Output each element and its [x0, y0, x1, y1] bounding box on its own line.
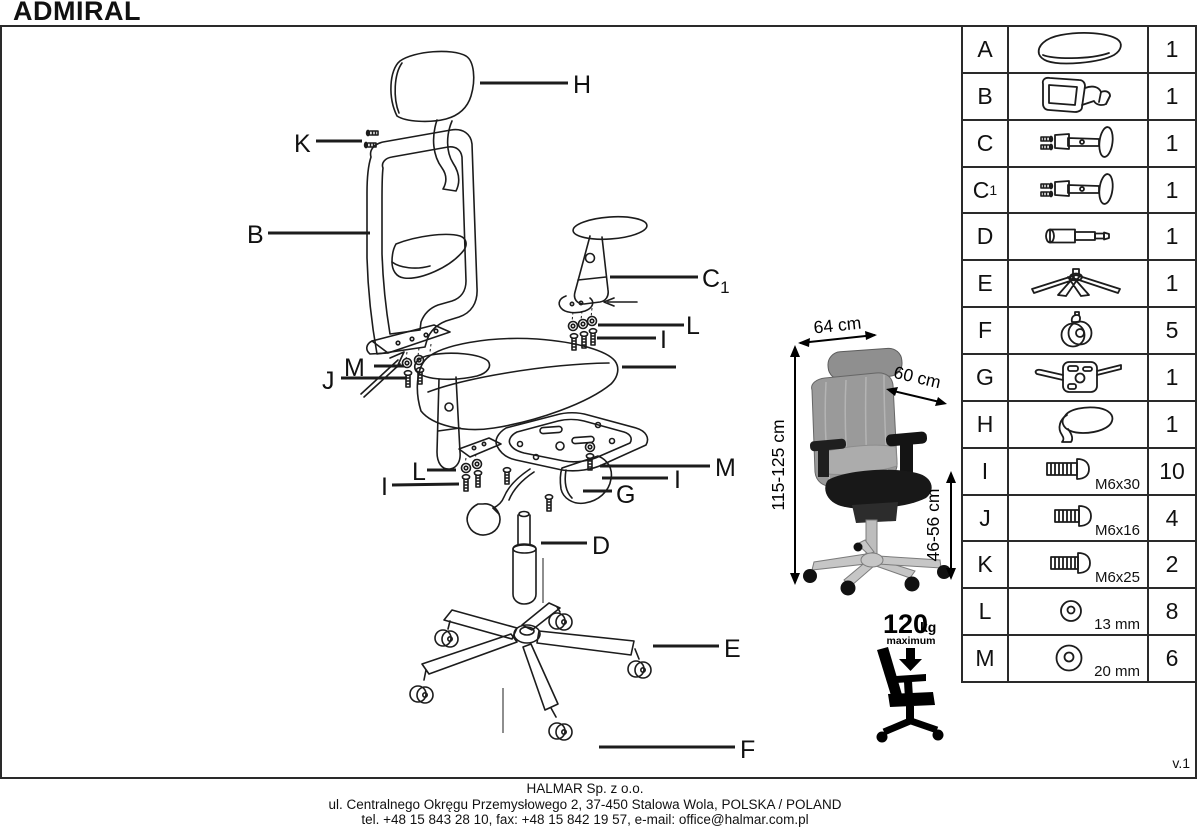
product-photo: 115-125 cm 64 cm 60 cm 46-56 cm	[770, 315, 970, 605]
part-qty: 1	[1149, 261, 1195, 306]
part-qty: 1	[1149, 121, 1195, 166]
part-letter: F	[963, 308, 1009, 353]
part-qty: 2	[1149, 542, 1195, 587]
dim-seat-height: 46-56 cm	[923, 489, 943, 562]
seat-part	[417, 338, 617, 429]
part-row-h: H 1	[963, 400, 1195, 447]
label-f: F	[740, 736, 755, 764]
part-letter: C1	[963, 168, 1009, 213]
part-letter: H	[963, 402, 1009, 447]
chair-silhouette	[877, 647, 944, 743]
part-qty: 1	[1149, 355, 1195, 400]
dim-height: 115-125 cm	[770, 419, 788, 510]
part-spec: M6x16	[1095, 522, 1140, 539]
label-h: H	[573, 71, 591, 99]
dim-width: 64 cm	[813, 315, 862, 337]
part-qty: 5	[1149, 308, 1195, 353]
label-g: G	[616, 481, 635, 509]
armrest-icon	[1013, 168, 1143, 212]
label-l-left: L	[412, 458, 426, 486]
part-row-d: D 1	[963, 212, 1195, 259]
part-qty: 1	[1149, 402, 1195, 447]
part-spec: M6x30	[1095, 476, 1140, 493]
part-row-c: C 1	[963, 119, 1195, 166]
caster-icon	[1013, 309, 1143, 353]
part-row-g: G 1	[963, 353, 1195, 400]
part-row-b: B 1	[963, 72, 1195, 119]
weight-label: maximum	[886, 635, 935, 647]
part-qty: 10	[1149, 449, 1195, 494]
part-spec: 20 mm	[1094, 663, 1140, 680]
weight-unit: kg	[920, 619, 936, 635]
part-row-l: L 13 mm 8	[963, 587, 1195, 634]
part-row-k: K M6x25 2	[963, 540, 1195, 587]
footer-address: ul. Centralnego Okręgu Przemysłowego 2, …	[0, 797, 1170, 813]
part-spec: M6x25	[1095, 569, 1140, 586]
part-row-a: A 1	[963, 27, 1195, 72]
armrest-right-part	[559, 214, 647, 350]
label-k: K	[294, 130, 311, 158]
part-qty: 1	[1149, 168, 1195, 213]
part-letter: I	[963, 449, 1009, 494]
screw-k-part	[366, 130, 378, 137]
dim-depth: 60 cm	[892, 362, 943, 392]
part-qty: 4	[1149, 496, 1195, 541]
part-letter: C	[963, 121, 1009, 166]
part-row-i: I M6x30 10	[963, 447, 1195, 494]
part-qty: 8	[1149, 589, 1195, 634]
label-e: E	[724, 635, 741, 663]
part-row-c1: C1 1	[963, 166, 1195, 213]
label-j: J	[322, 367, 335, 395]
label-m-right: M	[715, 454, 736, 482]
label-i-mid: I	[674, 466, 681, 494]
part-letter: M	[963, 636, 1009, 681]
part-letter: K	[963, 542, 1009, 587]
base-part	[410, 603, 651, 740]
part-qty: 6	[1149, 636, 1195, 681]
part-letter: G	[963, 355, 1009, 400]
label-c1: C1	[702, 265, 730, 297]
mechanism-part	[467, 413, 647, 535]
part-row-e: E 1	[963, 259, 1195, 306]
part-letter: B	[963, 74, 1009, 119]
part-row-j: J M6x16 4	[963, 494, 1195, 541]
label-b: B	[247, 221, 264, 249]
label-d: D	[592, 532, 610, 560]
gas-lift-icon	[1013, 215, 1143, 259]
mechanism-icon	[1013, 355, 1143, 399]
part-qty: 1	[1149, 27, 1195, 72]
headrest-icon	[1013, 402, 1143, 446]
base-icon	[1013, 262, 1143, 306]
weight-limit-icon: 120 kg maximum	[855, 598, 965, 768]
armrest-icon	[1013, 121, 1143, 165]
footer-company: HALMAR Sp. z o.o.	[0, 781, 1170, 797]
part-row-f: F 5	[963, 306, 1195, 353]
part-letter: L	[963, 589, 1009, 634]
footer: HALMAR Sp. z o.o. ul. Centralnego Okręgu…	[0, 781, 1170, 828]
headrest-part	[391, 51, 474, 191]
label-i-left: I	[381, 473, 388, 501]
label-l-right: L	[686, 312, 700, 340]
backrest-icon	[1013, 74, 1143, 118]
footer-contact: tel. +48 15 843 28 10, fax: +48 15 842 1…	[0, 812, 1170, 828]
version-label: v.1	[1130, 755, 1190, 771]
part-letter: E	[963, 261, 1009, 306]
screw-k-part	[364, 142, 376, 149]
part-row-m: M 20 mm 6	[963, 634, 1195, 681]
part-letter: D	[963, 214, 1009, 259]
label-i-right: I	[660, 326, 667, 354]
part-letter: J	[963, 496, 1009, 541]
backrest-part	[367, 130, 477, 354]
parts-table: A 1 B 1 C 1 C1	[961, 25, 1197, 683]
part-qty: 1	[1149, 214, 1195, 259]
gas-lift-part	[513, 512, 543, 605]
seat-icon	[1013, 27, 1143, 71]
part-letter: A	[963, 27, 1009, 72]
part-qty: 1	[1149, 74, 1195, 119]
part-spec: 13 mm	[1094, 616, 1140, 633]
